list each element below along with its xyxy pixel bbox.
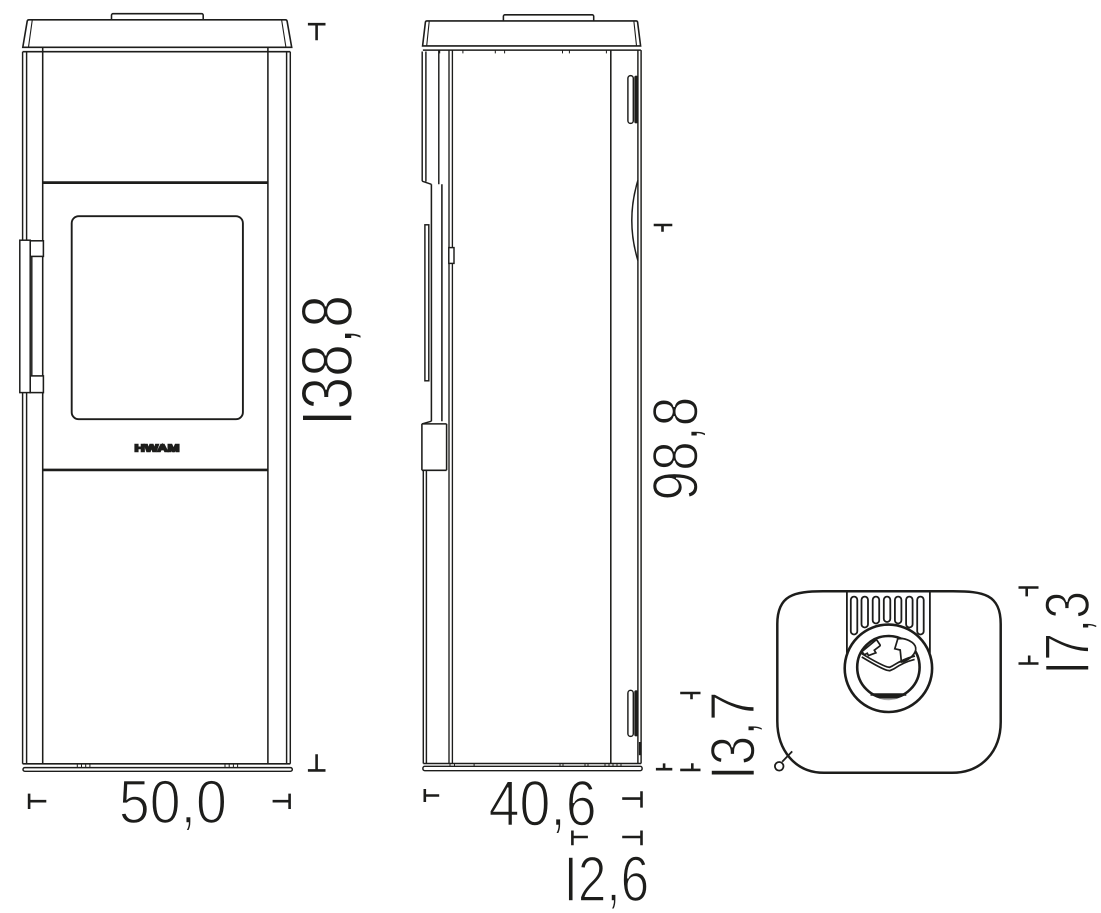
svg-text:HWAM: HWAM [135,444,180,455]
svg-text:98,8: 98,8 [640,397,712,501]
svg-text:I7,3: I7,3 [1033,591,1101,675]
svg-text:40,6: 40,6 [489,768,597,840]
svg-text:I38,8: I38,8 [288,295,368,426]
svg-text:I2,6: I2,6 [564,843,650,913]
svg-text:50,0: 50,0 [119,768,227,836]
svg-text:I3,7: I3,7 [699,692,769,781]
